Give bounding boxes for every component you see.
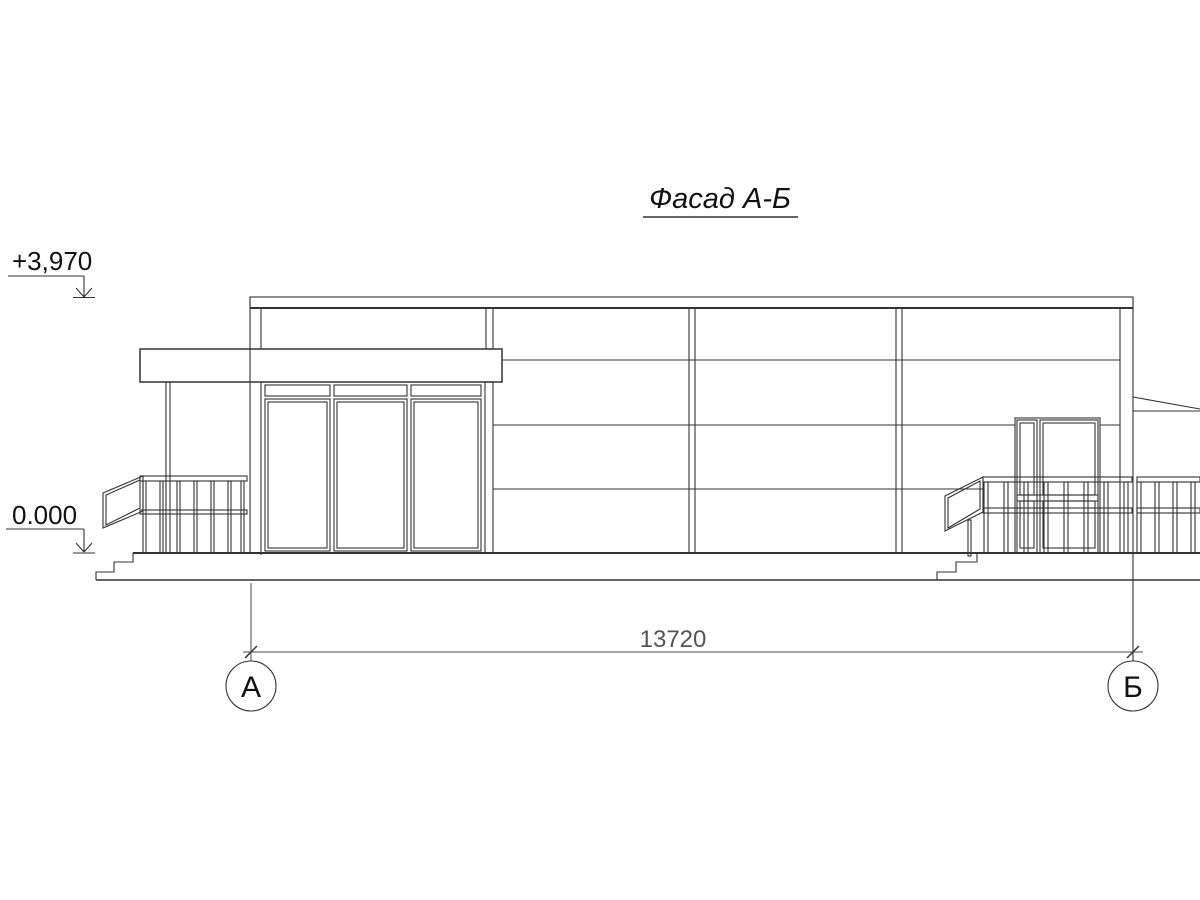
left-porch-railing <box>103 476 247 553</box>
railing-top-rail <box>1137 477 1200 482</box>
railing-balusters <box>984 482 1128 553</box>
entrance-canopy <box>140 349 502 382</box>
railing-post <box>1044 482 1048 553</box>
dimension-value: 13720 <box>640 626 707 653</box>
glazed-panel-inner <box>268 402 327 548</box>
door-glass <box>1043 423 1095 495</box>
railing-post <box>228 481 231 553</box>
railing-post <box>984 482 988 553</box>
transom-window <box>265 385 330 396</box>
entrance-glazing <box>265 385 481 551</box>
railing-post <box>1104 482 1108 553</box>
level-mark-roof: +3,970 <box>8 246 95 298</box>
steps-left <box>96 553 133 580</box>
railing-post <box>177 481 180 553</box>
glazed-panel-inner <box>414 402 478 548</box>
axis-b: Б <box>1108 297 1158 711</box>
ramp-slope-line <box>1133 397 1200 409</box>
glazed-panel <box>265 399 330 551</box>
drawing-title: Фасад А-Б <box>649 183 791 215</box>
railing-post <box>194 481 197 553</box>
railing-post <box>1124 482 1128 553</box>
railing-post <box>160 481 163 553</box>
ramp-edge <box>1133 397 1200 411</box>
door-leaf-wide <box>1040 420 1098 553</box>
column <box>896 308 902 553</box>
canopy-column <box>166 382 170 553</box>
railing-post <box>1084 482 1088 553</box>
railing-post <box>1004 482 1008 553</box>
glazed-panel-inner <box>337 402 404 548</box>
glazed-panel <box>411 399 481 551</box>
railing-post <box>1155 482 1159 553</box>
right-side-railing <box>1137 477 1200 553</box>
railing-top-rail <box>983 477 1132 482</box>
stair-railing-sloped-panel <box>945 477 983 531</box>
ground-level-label: 0.000 <box>12 500 77 530</box>
roof-parapet <box>250 297 1133 308</box>
door-glass <box>1020 423 1034 495</box>
transom-window <box>334 385 407 396</box>
facade-elevation-drawing: Фасад А-Б +3,970 0.000 <box>0 0 1200 900</box>
railing-post <box>211 481 214 553</box>
railing-post <box>1191 482 1195 553</box>
roof-level-label: +3,970 <box>12 246 92 276</box>
axis-label: Б <box>1123 671 1143 704</box>
level-mark-ground: 0.000 <box>6 500 95 553</box>
stair-railing-sloped-panel-inner <box>106 480 140 525</box>
railing-post <box>1173 482 1177 553</box>
dimension-line-group: 13720 <box>243 626 1143 658</box>
stair-railing-sloped-panel <box>103 476 143 528</box>
stair-railing-post <box>968 520 971 556</box>
column <box>486 308 493 349</box>
railing-balusters <box>143 481 244 553</box>
railing-top-rail <box>140 476 247 481</box>
railing-mid-rail <box>983 508 1132 513</box>
railing-post <box>1024 482 1028 553</box>
railing-post <box>1064 482 1068 553</box>
column <box>689 308 695 553</box>
column <box>485 382 493 553</box>
railing-post <box>1137 482 1141 553</box>
drawing-sheet: Фасад А-Б +3,970 0.000 <box>0 0 1200 900</box>
steps-right <box>937 553 977 580</box>
door-mid-rail <box>1017 495 1098 501</box>
building-elevation <box>96 297 1200 580</box>
railing-balusters <box>1137 482 1195 553</box>
axis-a: А <box>226 583 276 711</box>
glazed-panel <box>334 399 407 551</box>
axis-label: А <box>241 671 261 704</box>
title-block: Фасад А-Б <box>643 183 798 217</box>
railing-post <box>241 481 244 553</box>
transom-window <box>411 385 481 396</box>
